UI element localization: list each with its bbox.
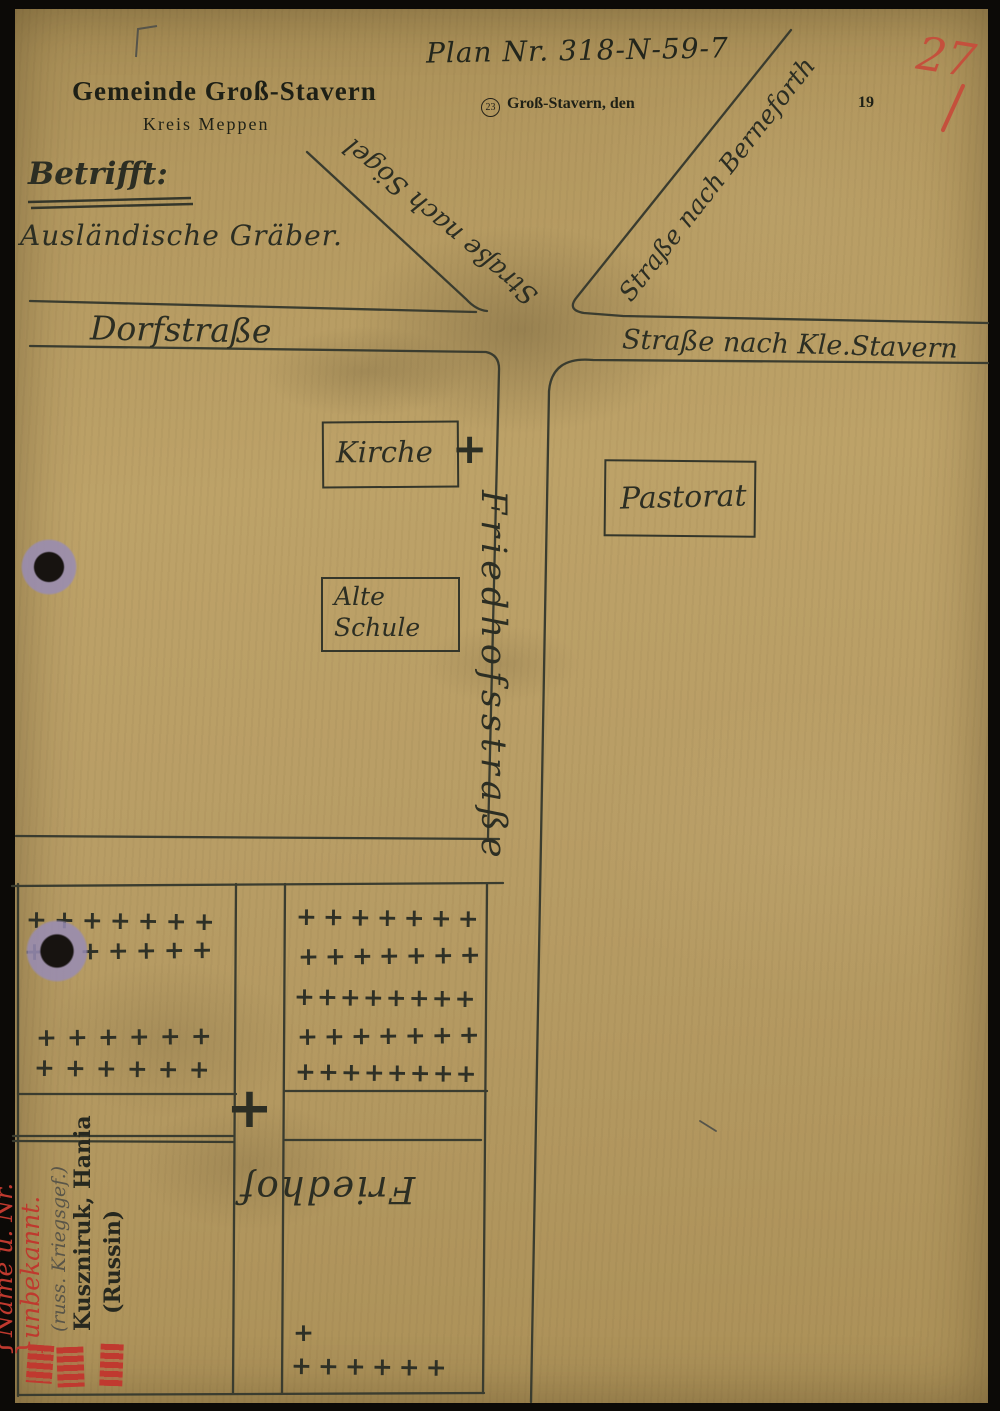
- grave-cross-row: +++++++: [296, 902, 485, 933]
- names-block-top-double-line: [13, 1136, 233, 1142]
- alte-schule-building-box: Alte Schule: [321, 577, 460, 652]
- betrifft-double-underline: [28, 198, 193, 208]
- subject-text: Ausländische Gräber.: [20, 219, 343, 252]
- grave-cross-row: ++++++: [291, 1351, 453, 1382]
- red-grave-marker: [56, 1347, 84, 1388]
- hole-punch-bottom: [26, 920, 88, 982]
- alte-schule-label-line2: Schule: [334, 613, 420, 642]
- cemetery-top-line: [12, 883, 503, 886]
- grave-cross-row: ++++++++: [295, 1057, 479, 1088]
- red-page-number: 27: [913, 26, 979, 88]
- cemetery-bottom-border: [18, 1393, 484, 1395]
- grave-note-red-line2: unbekannt.: [16, 1196, 45, 1339]
- pastorat-building-box: Pastorat: [604, 459, 757, 538]
- scanned-document-page: Gemeinde Groß-Stavern Kreis Meppen Plan …: [0, 0, 1000, 1411]
- red-grave-marker: [26, 1344, 55, 1384]
- grave-cross-single: +: [293, 1318, 314, 1347]
- letterhead-municipality: Gemeinde Groß-Stavern: [72, 76, 377, 107]
- grave-name: Kuszniruk, Hania: [70, 1115, 96, 1331]
- church-cross: +: [452, 424, 487, 473]
- letterhead-district: Kreis Meppen: [143, 114, 269, 135]
- corner-pencil-mark: [136, 26, 157, 57]
- alte-schule-label-line1: Alte: [334, 582, 385, 611]
- red-check-slash: [943, 86, 963, 130]
- street-label-friedhofstrasse: Friedhofsstraße: [473, 490, 513, 864]
- grave-cross-row: ++++++++: [294, 982, 478, 1013]
- year-prefix: 19: [858, 94, 874, 112]
- street-label-dorfstrasse: Dorfstraße: [90, 308, 272, 350]
- stray-pencil-stroke: [700, 1121, 716, 1131]
- cemetery-strip-upper-line: [16, 836, 499, 839]
- kle-bottom-line-and-street-right: [531, 360, 988, 1402]
- postal-code-badge: 23: [481, 98, 500, 117]
- grave-cross-row: ++++++: [34, 1053, 220, 1084]
- grave-cross-row: +++++++: [298, 940, 487, 971]
- grave-nationality: (Russin): [100, 1210, 126, 1314]
- postal-code-value: 23: [486, 102, 496, 113]
- red-grave-marker: [99, 1344, 123, 1387]
- cemetery-path-cross: +: [226, 1076, 273, 1141]
- dateline: Groß-Stavern, den: [507, 95, 635, 113]
- grave-cross-row: +++++++: [297, 1020, 486, 1051]
- hole-punch-top: [21, 539, 77, 595]
- grave-cross-row: ++++++: [36, 1021, 222, 1052]
- friedhof-label: Friedhof: [232, 1168, 422, 1211]
- kirche-label: Kirche: [336, 435, 433, 470]
- plan-number: Plan Nr. 318-N-59-7: [426, 31, 729, 69]
- kirche-building-box: Kirche: [322, 421, 459, 489]
- pastorat-label: Pastorat: [620, 478, 747, 516]
- subject-label: Betrifft:: [28, 156, 168, 192]
- grave-note-pencil: (russ. Kriegsgef.): [48, 1166, 70, 1332]
